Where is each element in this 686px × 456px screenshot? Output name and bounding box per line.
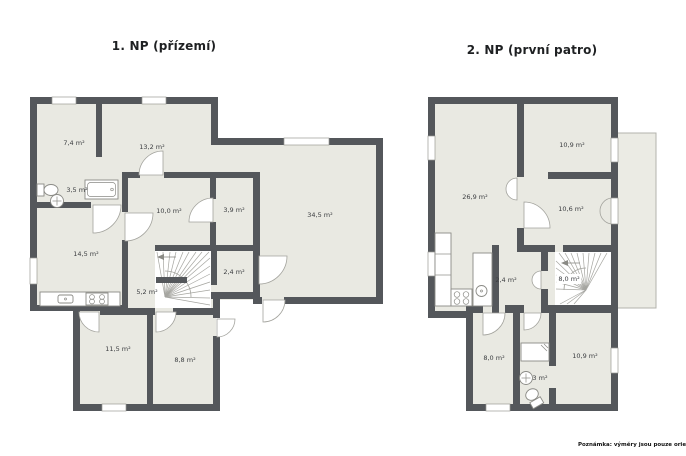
room-label: 3,9 m²	[223, 206, 244, 214]
wash-basin-icon	[51, 195, 64, 208]
kitchen-sink-icon	[476, 286, 487, 297]
room-label: 14,5 m²	[73, 250, 98, 258]
floorplan-drawing	[0, 0, 686, 456]
room-label: 3,5 m²	[66, 186, 87, 194]
toilet-icon	[37, 184, 58, 196]
room-label: 5,2 m²	[136, 288, 157, 296]
stove-icon	[451, 289, 472, 306]
bathtub-icon	[85, 180, 118, 199]
room-label: 11,5 m²	[105, 345, 130, 353]
floorplan-page: 1. NP (přízemí) 2. NP (první patro) 7,4 …	[0, 0, 686, 456]
floor2-title: 2. NP (první patro)	[422, 43, 642, 57]
room-label: 8,8 m²	[174, 356, 195, 364]
room-label: 2,4 m²	[223, 268, 244, 276]
room-label: 26,9 m²	[462, 193, 487, 201]
room-label: 34,5 m²	[307, 211, 332, 219]
room-label: 7,4 m²	[63, 139, 84, 147]
room-label: 10,6 m²	[558, 205, 583, 213]
wash-basin-icon	[520, 372, 533, 385]
room-label: 2,4 m²	[495, 276, 516, 284]
room-label: 13,2 m²	[139, 143, 164, 151]
floor1-title: 1. NP (přízemí)	[54, 39, 274, 53]
balcony	[614, 133, 656, 308]
kitchen-counter-icon	[40, 292, 120, 306]
room-label: 8,0 m²	[483, 354, 504, 362]
room-label: 3 m²	[532, 374, 547, 382]
room-label: 10,0 m²	[156, 207, 181, 215]
kitchen-sink-icon	[58, 295, 73, 303]
footnote: Poznámka: výměry jsou pouze orientační.	[578, 442, 686, 448]
room-label: 10,9 m²	[559, 141, 584, 149]
stair-handrail	[156, 277, 187, 283]
floor1-staircase	[155, 251, 211, 308]
stove-icon	[86, 293, 108, 305]
floor2-plan	[428, 97, 656, 411]
room-label: 10,9 m²	[572, 352, 597, 360]
room-label: 8,0 m²	[556, 274, 581, 284]
shower-icon	[521, 343, 549, 361]
